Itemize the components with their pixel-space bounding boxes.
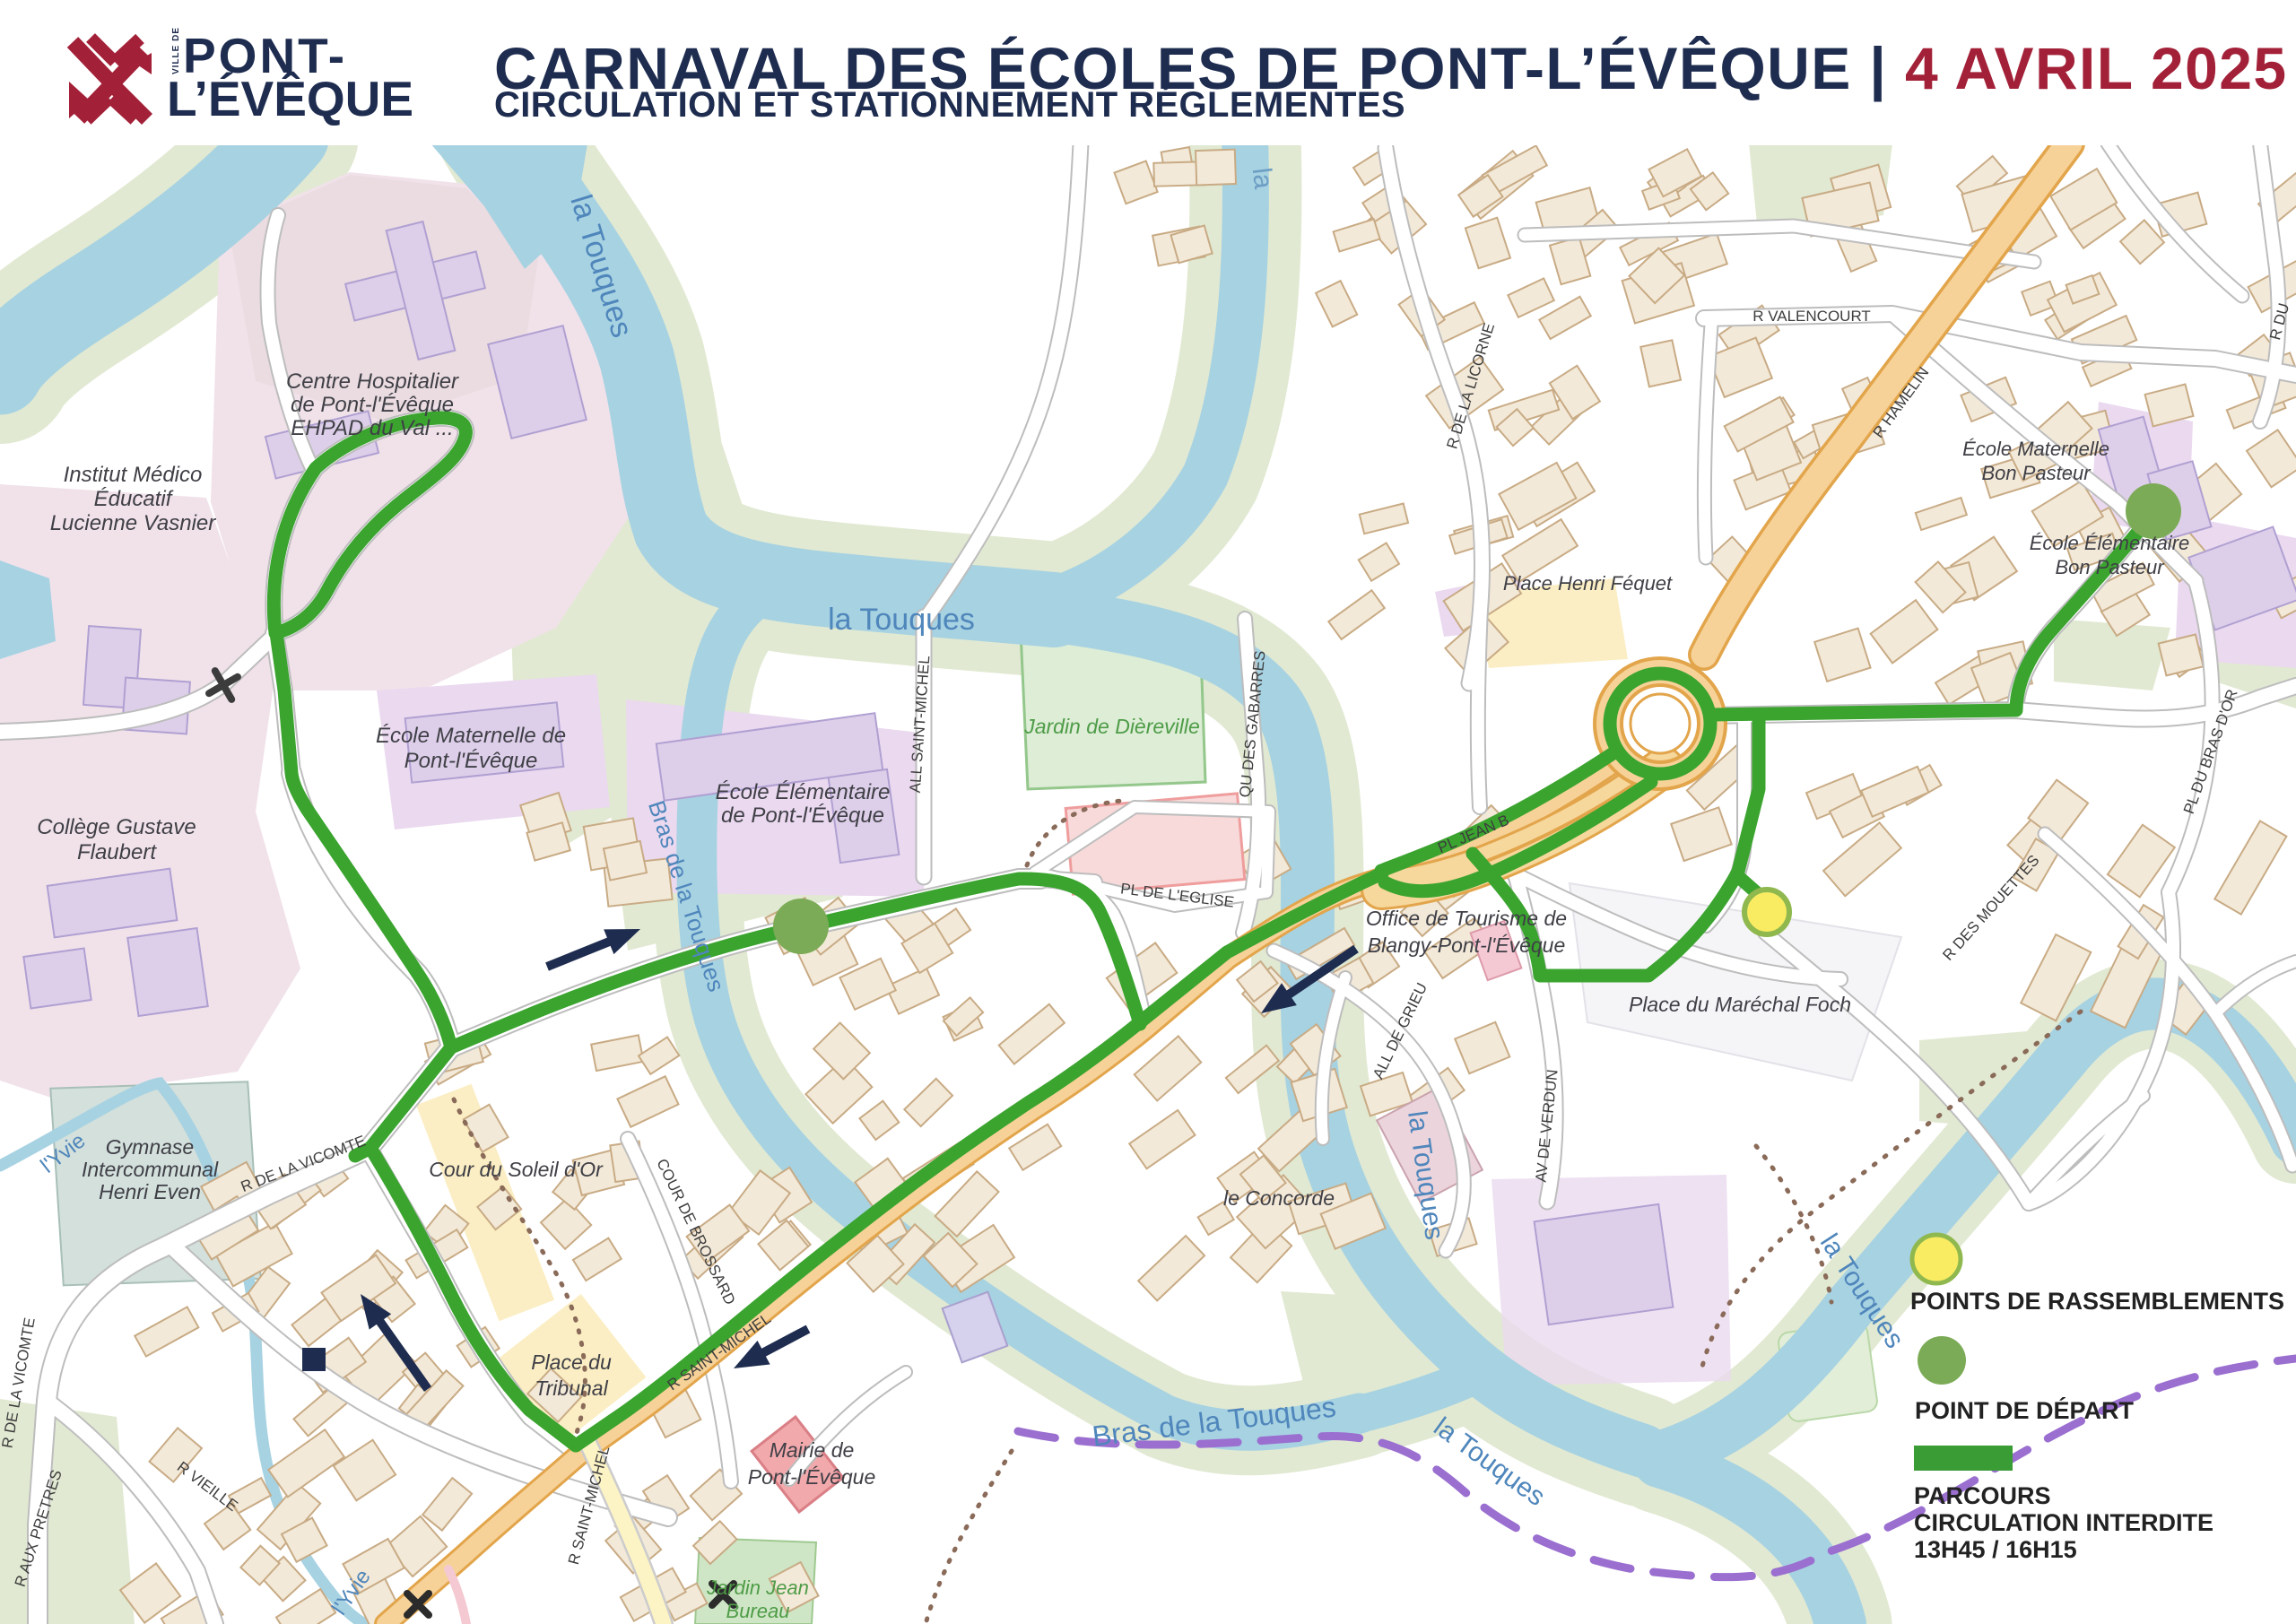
svg-text:la: la xyxy=(1247,166,1279,191)
svg-text:Blangy-Pont-l'Évêque: Blangy-Pont-l'Évêque xyxy=(1368,934,1565,957)
svg-text:École Maternelle de: École Maternelle de xyxy=(376,724,566,748)
svg-text:Flaubert: Flaubert xyxy=(77,840,157,864)
svg-text:R VALENCOURT: R VALENCOURT xyxy=(1752,308,1871,325)
svg-text:Bureau: Bureau xyxy=(726,1600,790,1622)
svg-text:CIRCULATION INTERDITE: CIRCULATION INTERDITE xyxy=(1914,1509,2213,1536)
svg-text:la Touques: la Touques xyxy=(828,603,975,637)
svg-text:Cour du Soleil d'Or: Cour du Soleil d'Or xyxy=(429,1158,604,1181)
svg-text:Jardin Jean: Jardin Jean xyxy=(706,1576,809,1599)
svg-text:POINTS DE RASSEMBLEMENTS: POINTS DE RASSEMBLEMENTS xyxy=(1910,1288,2284,1315)
svg-text:Centre Hospitalier: Centre Hospitalier xyxy=(286,369,459,394)
svg-text:VILLE DE: VILLE DE xyxy=(171,27,181,74)
svg-text:École Maternelle: École Maternelle xyxy=(1962,438,2109,460)
svg-text:Place du: Place du xyxy=(531,1350,612,1374)
svg-text:Bon Pasteur: Bon Pasteur xyxy=(1981,462,2092,484)
svg-text:Jardin de Dièreville: Jardin de Dièreville xyxy=(1023,715,1200,738)
svg-text:École Élémentaire: École Élémentaire xyxy=(716,780,891,804)
svg-text:PARCOURS: PARCOURS xyxy=(1914,1482,2051,1509)
svg-text:Place du Maréchal Foch: Place du Maréchal Foch xyxy=(1629,993,1851,1016)
svg-text:Collège Gustave: Collège Gustave xyxy=(37,815,196,839)
svg-text:POINT DE DÉPART: POINT DE DÉPART xyxy=(1915,1396,2135,1424)
svg-text:Éducatif: Éducatif xyxy=(94,487,174,511)
svg-text:L’ÉVÊQUE: L’ÉVÊQUE xyxy=(167,71,413,126)
svg-text:13H45 / 16H15: 13H45 / 16H15 xyxy=(1914,1536,2077,1563)
svg-text:de Pont-l'Évêque: de Pont-l'Évêque xyxy=(291,393,454,417)
svg-text:Intercommunal: Intercommunal xyxy=(82,1158,219,1181)
svg-text:Henri Even: Henri Even xyxy=(99,1180,201,1203)
svg-text:Gymnase: Gymnase xyxy=(106,1135,194,1159)
svg-text:Place Henri Féquet: Place Henri Féquet xyxy=(1503,572,1673,595)
svg-text:Pont-l'Évêque: Pont-l'Évêque xyxy=(404,749,538,773)
svg-text:Institut Médico: Institut Médico xyxy=(64,463,203,487)
svg-text:de Pont-l'Évêque: de Pont-l'Évêque xyxy=(721,803,884,828)
svg-text:Tribunal: Tribunal xyxy=(535,1376,608,1400)
svg-text:Lucienne Vasnier: Lucienne Vasnier xyxy=(50,511,217,535)
svg-text:Office de Tourisme de: Office de Tourisme de xyxy=(1366,907,1567,930)
svg-text:École Élémentaire: École Élémentaire xyxy=(2030,532,2190,554)
svg-text:EHPAD du Val ...: EHPAD du Val ... xyxy=(291,416,453,440)
svg-text:Mairie de: Mairie de xyxy=(770,1438,855,1462)
svg-text:Pont-l'Évêque: Pont-l'Évêque xyxy=(748,1465,875,1489)
svg-text:le Concorde: le Concorde xyxy=(1223,1186,1335,1210)
svg-text:Bon Pasteur: Bon Pasteur xyxy=(2055,556,2165,578)
